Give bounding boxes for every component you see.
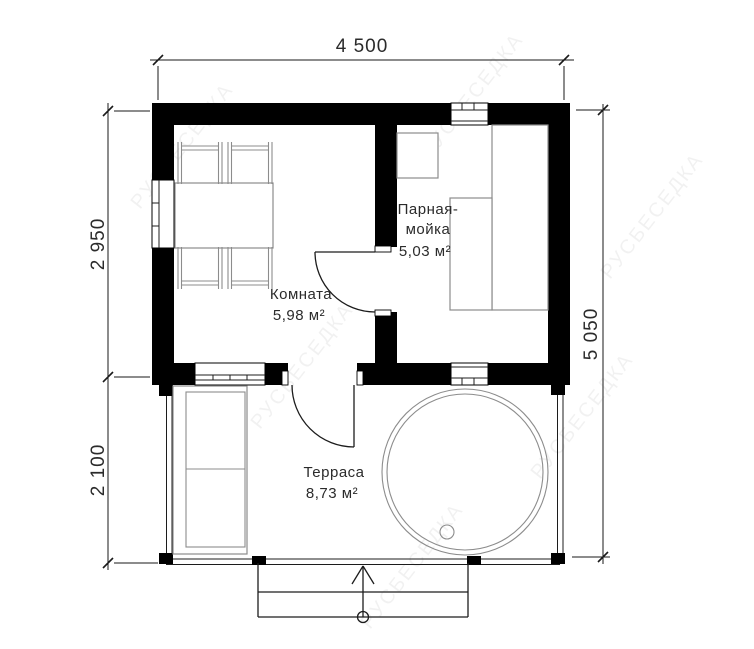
chair: [178, 247, 222, 289]
door-swing-arc: [292, 385, 354, 447]
dimension-right-label: 5 050: [581, 308, 602, 361]
room-area: 5,98 м²: [273, 307, 325, 324]
door-jamb: [282, 371, 288, 385]
terrace-post: [159, 553, 173, 564]
hot-tub: [382, 389, 548, 555]
window-room-bottom: [195, 363, 265, 385]
dimension-left-upper: 2 950: [88, 103, 150, 385]
chair: [228, 247, 272, 289]
sauna-stove: [397, 133, 438, 178]
bottom-wall: [152, 363, 195, 385]
sauna-bench-upper: [492, 125, 548, 310]
chair: [228, 142, 272, 184]
left-wall: [152, 103, 174, 180]
top-wall: [152, 103, 451, 125]
door-jamb: [357, 371, 363, 385]
room-name: Терраса: [303, 464, 364, 481]
interior-wall-upper: [375, 125, 397, 247]
room-label-terrasa: Терраса 8,73 м²: [303, 464, 364, 502]
terrace-post: [467, 556, 481, 565]
room-name: мойка: [406, 221, 451, 238]
terrace-post: [551, 553, 565, 564]
right-wall: [548, 103, 570, 385]
watermark-text: РУСБЕСЕДКА: [597, 149, 708, 283]
window-sauna-bottom: [451, 363, 488, 385]
dimension-top-label: 4 500: [336, 36, 389, 57]
watermark-text: РУСБЕСЕДКА: [357, 499, 468, 633]
window-top: [451, 103, 488, 125]
terrace-post: [551, 385, 565, 395]
room-name: Комната: [270, 286, 332, 303]
room-name: Парная-: [398, 201, 459, 218]
dimension-left-lower-label: 2 100: [88, 444, 109, 497]
bottom-wall: [488, 363, 570, 385]
bottom-wall: [357, 363, 451, 385]
interior-wall: [375, 125, 397, 363]
window-left: [152, 180, 174, 248]
interior-wall-lower: [375, 312, 397, 363]
floor-plan-drawing: РУСБЕСЕДКА РУСБЕСЕДКА РУСБЕСЕДКА РУСБЕСЕ…: [0, 0, 754, 649]
dimension-left-upper-label: 2 950: [88, 218, 109, 271]
sofa: [173, 386, 247, 554]
dimension-left-lower: 2 100: [88, 370, 158, 570]
door-jamb: [375, 310, 391, 316]
dining-table: [175, 183, 273, 248]
floor-plan: РУСБЕСЕДКА РУСБЕСЕДКА РУСБЕСЕДКА РУСБЕСЕ…: [0, 0, 754, 649]
terrace-post: [159, 385, 173, 396]
room-label-komnata: Комната 5,98 м²: [270, 286, 332, 324]
room-label-parnaya: Парная- мойка 5,03 м²: [398, 201, 459, 260]
room-area: 5,03 м²: [399, 243, 451, 260]
door-jamb: [375, 246, 391, 252]
dimension-right: 5 050: [572, 104, 610, 564]
terrace-post: [252, 556, 266, 565]
room-area: 8,73 м²: [306, 485, 358, 502]
